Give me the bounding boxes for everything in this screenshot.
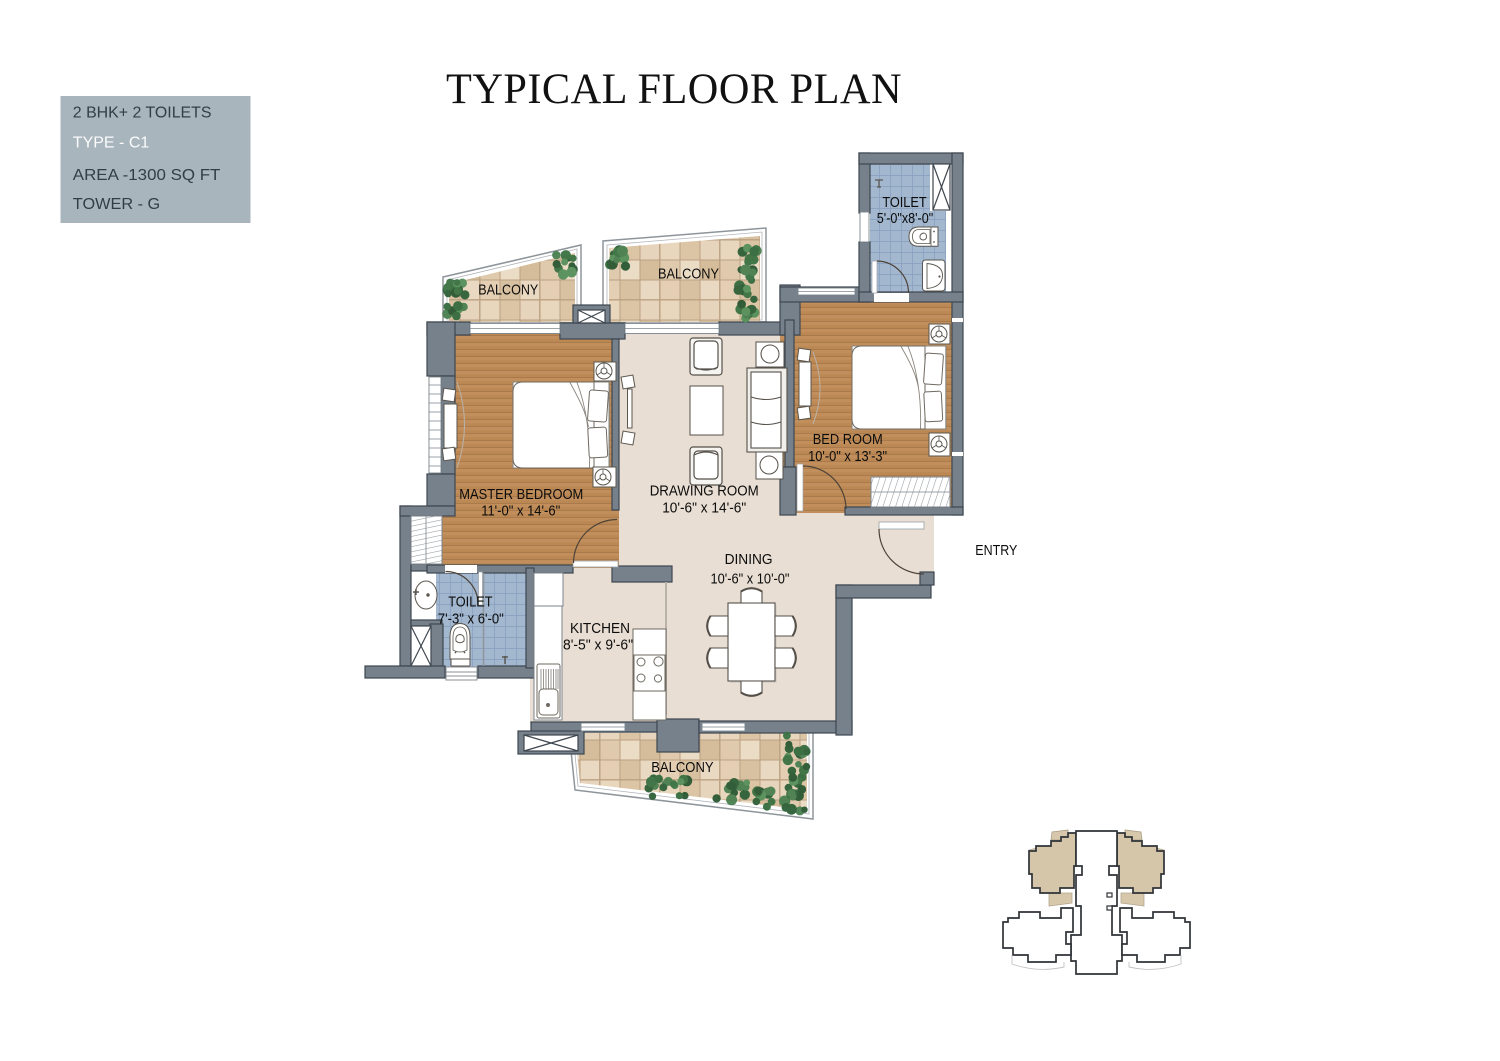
svg-text:ENTRY: ENTRY (975, 543, 1017, 559)
svg-text:BALCONY: BALCONY (658, 266, 719, 282)
svg-text:10'-0" x 13'-3": 10'-0" x 13'-3" (808, 449, 887, 465)
svg-text:10'-6" x 10'-0": 10'-6" x 10'-0" (711, 571, 790, 587)
svg-text:11'-0" x 14'-6": 11'-0" x 14'-6" (481, 503, 560, 519)
svg-text:KITCHEN: KITCHEN (570, 621, 630, 637)
svg-text:2 BHK+ 2 TOILETS: 2 BHK+ 2 TOILETS (73, 104, 212, 121)
svg-text:TOILET: TOILET (448, 595, 493, 611)
svg-text:BALCONY: BALCONY (478, 283, 538, 299)
svg-text:DINING: DINING (725, 552, 773, 568)
svg-text:7'-3" x 6'-0": 7'-3" x 6'-0" (438, 611, 504, 627)
svg-text:8'-5" x 9'-6": 8'-5" x 9'-6" (563, 638, 633, 654)
svg-text:TYPE - C1: TYPE - C1 (73, 134, 150, 151)
svg-text:10'-6" x 14'-6": 10'-6" x 14'-6" (662, 500, 746, 516)
svg-text:5'-0"x8'-0": 5'-0"x8'-0" (877, 211, 933, 227)
svg-text:BED ROOM: BED ROOM (813, 432, 883, 448)
svg-text:TYPICAL FLOOR PLAN: TYPICAL FLOOR PLAN (446, 65, 902, 113)
svg-text:BALCONY: BALCONY (651, 760, 714, 776)
svg-text:DRAWING ROOM: DRAWING ROOM (650, 483, 759, 499)
svg-text:AREA -1300 SQ FT: AREA -1300 SQ FT (73, 167, 221, 184)
svg-text:TOWER - G: TOWER - G (73, 196, 160, 213)
svg-text:TOILET: TOILET (882, 195, 927, 211)
svg-text:MASTER BEDROOM: MASTER BEDROOM (459, 487, 583, 503)
